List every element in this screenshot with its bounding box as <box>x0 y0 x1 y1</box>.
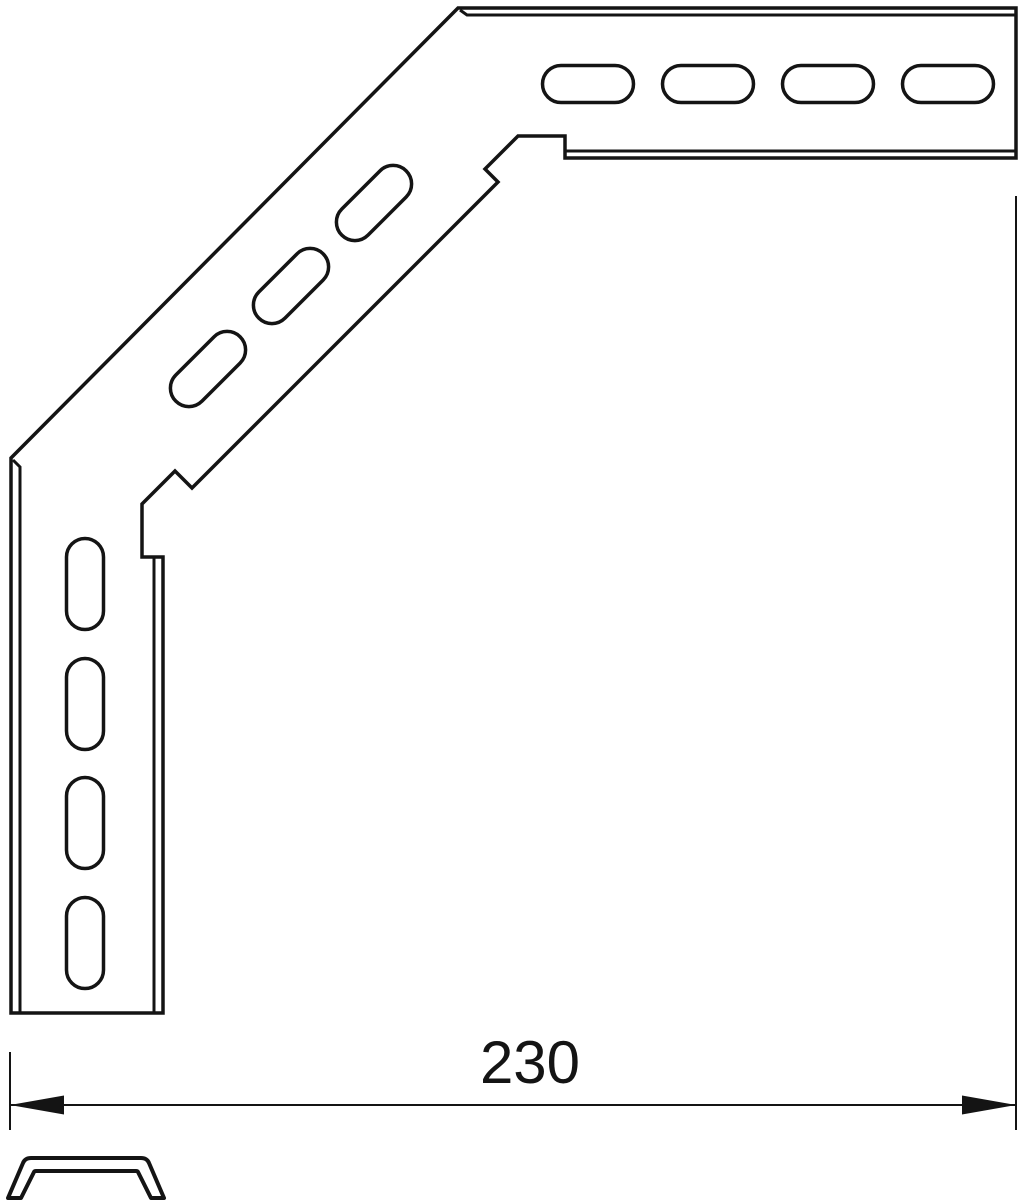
dimension-arrow-left <box>10 1096 64 1115</box>
profile-cross-section <box>8 1158 164 1198</box>
technical-drawing-canvas: 230 <box>0 0 1023 1200</box>
dimension-label: 230 <box>480 1029 580 1096</box>
dimension-arrow-right <box>962 1096 1016 1115</box>
slot-hole-8 <box>67 539 104 630</box>
slot-hole-11 <box>67 898 104 989</box>
profile-outline <box>8 1158 164 1198</box>
bracket-outline <box>11 8 1016 1013</box>
technical-drawing: 230 <box>0 0 1023 1200</box>
bracket-part <box>11 8 1016 1013</box>
slot-hole-4 <box>903 66 994 103</box>
slot-hole-2 <box>663 66 754 103</box>
slot-hole-3 <box>783 66 874 103</box>
slot-hole-9 <box>67 659 104 750</box>
slot-hole-10 <box>67 778 104 869</box>
slot-hole-1 <box>543 66 634 103</box>
